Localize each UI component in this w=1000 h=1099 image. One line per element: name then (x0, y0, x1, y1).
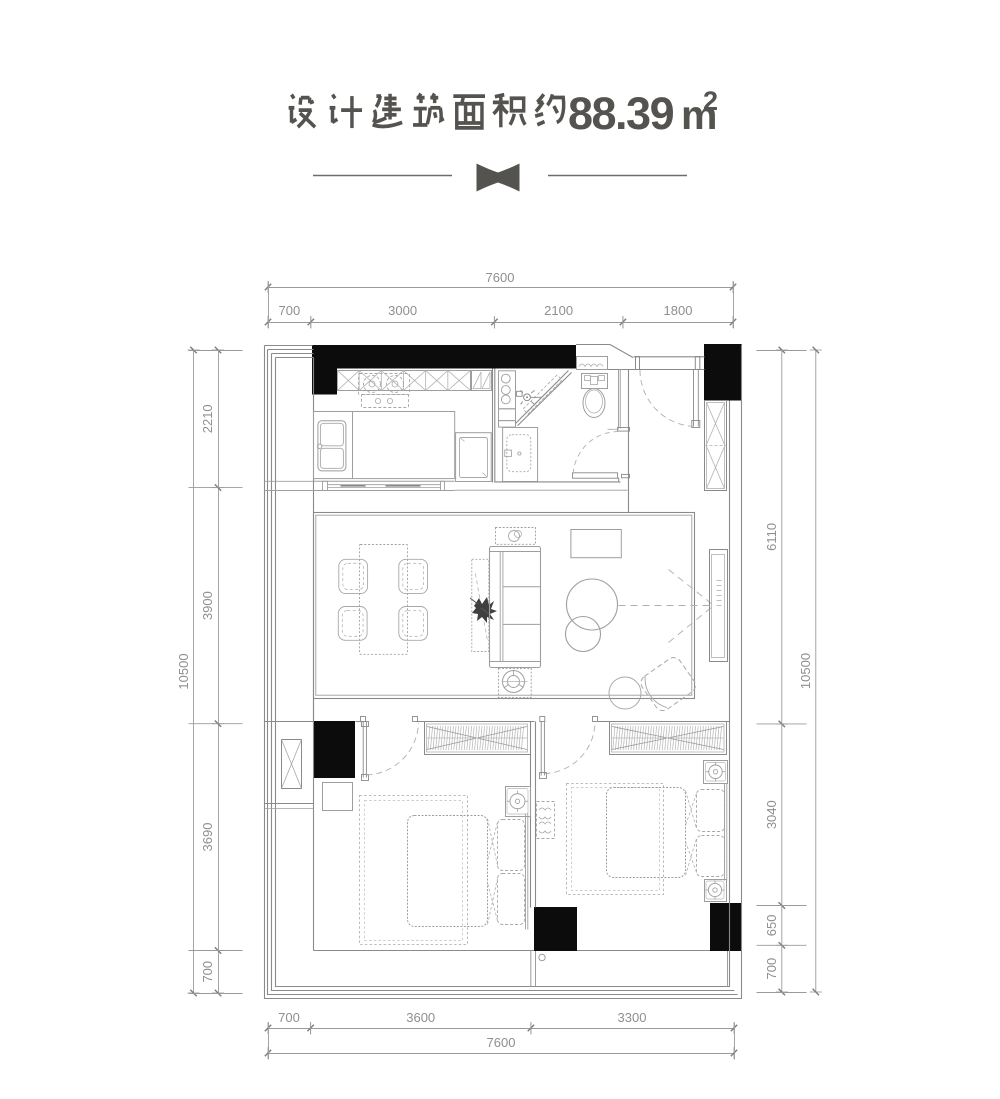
svg-text:3900: 3900 (200, 591, 215, 620)
svg-text:700: 700 (764, 958, 779, 980)
svg-text:88.39: 88.39 (568, 88, 674, 139)
svg-text:3000: 3000 (388, 303, 417, 318)
svg-text:2210: 2210 (200, 404, 215, 433)
svg-text:6110: 6110 (764, 523, 779, 551)
svg-text:700: 700 (200, 961, 215, 983)
svg-text:3600: 3600 (406, 1010, 435, 1025)
svg-text:700: 700 (278, 1010, 300, 1025)
svg-text:7600: 7600 (486, 270, 515, 285)
svg-text:3040: 3040 (764, 800, 779, 829)
svg-text:2: 2 (703, 86, 718, 116)
svg-text:2100: 2100 (544, 303, 573, 318)
svg-text:7600: 7600 (487, 1035, 516, 1050)
svg-text:1800: 1800 (664, 303, 693, 318)
svg-text:10500: 10500 (176, 653, 191, 689)
svg-text:700: 700 (279, 303, 301, 318)
svg-text:650: 650 (764, 915, 779, 937)
svg-text:3300: 3300 (618, 1010, 647, 1025)
svg-text:3690: 3690 (200, 823, 215, 852)
svg-text:10500: 10500 (798, 653, 813, 689)
